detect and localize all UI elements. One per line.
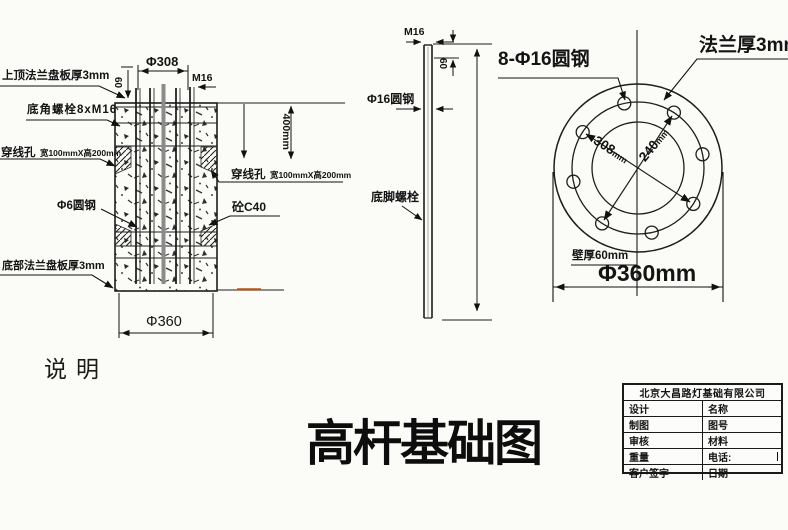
top-flange-label: 上顶法兰盘板厚3mm: [2, 70, 109, 83]
flange-bolt-pattern-label: 8-Φ16圆钢: [498, 50, 590, 71]
cell-design: 设计: [624, 401, 703, 416]
dim-protrusion-60: 60: [112, 77, 123, 88]
wire-hole-name-right: 穿线孔: [231, 169, 266, 181]
wire-hole-size-right: 宽100mmX高200mm: [270, 170, 351, 180]
table-row: 审核 材料: [624, 432, 781, 448]
bolt-rod-label: Φ16圆钢: [367, 93, 414, 106]
cell-customer-signature: 客户签字: [624, 465, 703, 480]
cell-date: 日期: [703, 465, 781, 480]
wire-hole-name-left: 穿线孔: [1, 147, 36, 159]
cell-drawing-no: 图号: [703, 417, 781, 432]
title-block: 北京大昌路灯基础有限公司 设计 名称 制图 图号 审核 材料 重量 电话: 客户…: [622, 383, 783, 474]
bolt-anchor-label: 底脚螺栓: [371, 191, 419, 204]
cell-weight: 重量: [624, 449, 703, 464]
dim-base-diameter-360: Φ360: [146, 315, 182, 331]
section-view: [115, 84, 345, 291]
table-row: 制图 图号: [624, 416, 781, 432]
bolt-dim-top-60: 60: [437, 58, 448, 69]
wire-hole-label-right: 穿线孔 宽100mmX高200mm: [231, 165, 351, 183]
bottom-flange-label: 底部法兰盘板厚3mm: [2, 260, 105, 272]
flange-outer-diameter: Φ360mm: [598, 261, 696, 286]
notes-label: 说明: [44, 350, 108, 384]
dim-hole-depth-400: 400mm: [279, 112, 291, 152]
dim-bolt-circle-308: Φ308: [146, 55, 178, 69]
dim-thread-m16-left: M16: [192, 73, 212, 85]
concrete-label: 砼C40: [232, 201, 266, 214]
table-row: 设计 名称: [624, 401, 781, 416]
cell-review: 审核: [624, 433, 703, 448]
drawing-title: 高杆基础图: [306, 404, 541, 475]
anchor-bolt-label: 底角螺栓8xM16: [27, 104, 117, 117]
cell-phone: 电话:: [703, 449, 781, 464]
bolt-view-dimensions: [396, 30, 477, 311]
cell-material: 材料: [703, 433, 781, 448]
foundation-drawing-sheet: 上顶法兰盘板厚3mm 底角螺栓8xM16 穿线孔 宽100mmX高200mm Φ…: [0, 0, 788, 530]
table-row: 重量 电话:: [624, 448, 781, 464]
table-row: 客户签字 日期: [624, 464, 781, 480]
cell-name: 名称: [703, 401, 781, 416]
cell-drafting: 制图: [624, 417, 703, 432]
company-name: 北京大昌路灯基础有限公司: [624, 385, 781, 401]
bolt-view: [424, 44, 492, 320]
wire-hole-label-left: 穿线孔 宽100mmX高200mm: [1, 143, 121, 161]
wire-hole-size-left: 宽100mmX高200mm: [40, 148, 121, 158]
rebar-label: Φ6圆钢: [57, 200, 96, 213]
flange-thickness-label: 法兰厚3mm: [699, 36, 788, 57]
bolt-dim-thread-m16: M16: [404, 27, 424, 39]
